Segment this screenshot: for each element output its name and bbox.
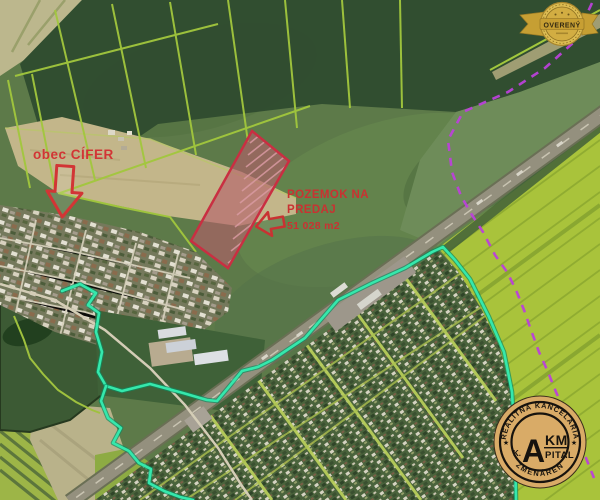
logo-a-big: A — [522, 433, 545, 469]
logo-pital: PITAL — [545, 450, 574, 461]
logo-star-left: ★ — [503, 439, 509, 447]
agency-logo: REALITNÁ KANCELÁRIA ZMENÁREŇ ★ ★ K. A KM… — [494, 396, 586, 488]
logo-star-right: ★ — [571, 439, 577, 447]
parcel-area-label: 51 028 m2 — [287, 220, 340, 232]
logo-k-small: K. — [513, 449, 521, 458]
logo-km: KM — [545, 432, 568, 448]
map-canvas: obec CÍFER POZEMOK NA PREDAJ 51 028 m2 O… — [0, 0, 600, 500]
satellite-map-screenshot: obec CÍFER POZEMOK NA PREDAJ 51 028 m2 O… — [0, 0, 600, 500]
verified-badge-label: OVERENÝ — [543, 20, 580, 29]
parcel-label-line2: PREDAJ — [287, 204, 336, 216]
parcel-label-line1: POZEMOK NA — [287, 189, 369, 201]
village-label: obec CÍFER — [33, 147, 114, 162]
